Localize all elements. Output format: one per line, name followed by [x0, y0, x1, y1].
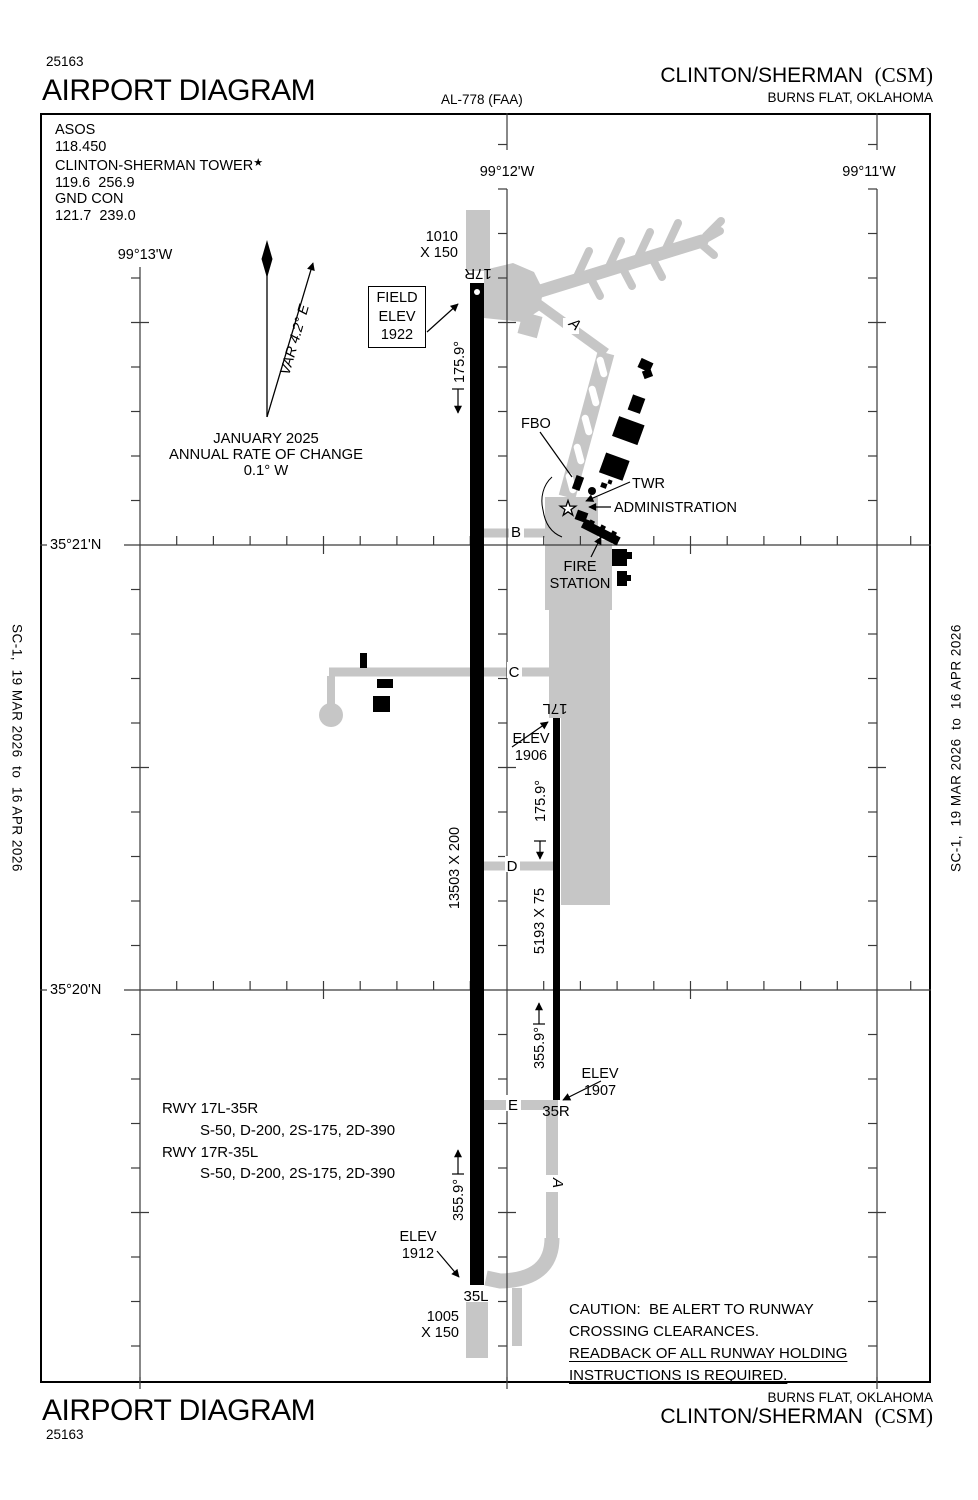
- field-elev-box: FIELD ELEV 1922: [368, 286, 426, 348]
- building: [628, 394, 646, 413]
- building: [642, 369, 653, 380]
- caution-note: CAUTION: BE ALERT TO RUNWAY CROSSING CLE…: [569, 1299, 847, 1387]
- runway-dimensions-parallel: 5193 X 75: [532, 888, 548, 954]
- rwy2-strength: S-50, D-200, 2S-175, 2D-390: [162, 1163, 395, 1185]
- airport-diagram-page: 25163 AIRPORT DIAGRAM AL-778 (FAA) CLINT…: [0, 0, 978, 1500]
- tower-star-icon: ★: [253, 156, 263, 169]
- tower-dot: [588, 487, 596, 495]
- building: [627, 552, 632, 559]
- fbo-leader: [540, 432, 572, 477]
- taxiway-label-e: E: [508, 1097, 518, 1114]
- compass-rose: VAR 4.2° E: [262, 240, 314, 417]
- building: [600, 482, 607, 489]
- fire-station-label: FIRE STATION: [550, 559, 611, 592]
- tower-freq: 119.6 256.9: [55, 175, 263, 192]
- taxiway-a-south: [546, 1100, 558, 1242]
- elev-1912-leader: [437, 1251, 459, 1277]
- runway-17l-35r: [553, 718, 560, 1100]
- runway-heading-35r: 355.9°: [532, 1027, 548, 1069]
- runway-data-block: RWY 17L-35R S-50, D-200, 2S-175, 2D-390 …: [162, 1098, 395, 1185]
- city-bottom: BURNS FLAT, OKLAHOMA: [767, 1390, 933, 1405]
- runway-id-17r: 17R: [464, 265, 492, 282]
- building: [599, 452, 630, 480]
- variation-rate-value: 0.1° W: [169, 463, 363, 479]
- runway-heading-17l: 175.9°: [533, 780, 549, 822]
- elev-1912-label: ELEV 1912: [399, 1229, 436, 1262]
- elev-1907-label: ELEV 1907: [581, 1066, 618, 1099]
- fire-station-building: [617, 571, 627, 586]
- building: [612, 416, 645, 445]
- building: [377, 679, 393, 688]
- rwy2-id: RWY 17R-35L: [162, 1142, 395, 1164]
- overrun-south: [466, 1302, 488, 1358]
- overrun-south-label: 1005 X 150: [421, 1309, 459, 1341]
- true-north-arrowhead: [262, 240, 273, 278]
- overrun-north-label: 1010 X 150: [420, 229, 458, 261]
- taxiway-label-b: B: [511, 524, 521, 541]
- asos-freq: 118.450: [55, 139, 263, 156]
- variation-date: JANUARY 2025: [169, 431, 363, 447]
- rwy1-strength: S-50, D-200, 2S-175, 2D-390: [162, 1120, 395, 1142]
- fire-station-building: [612, 549, 627, 566]
- taxiway-label-a-south: A: [549, 1177, 566, 1188]
- taxiway-label-d: D: [507, 858, 518, 875]
- comms-block: ASOS 118.450 CLINTON-SHERMAN TOWER★ 119.…: [55, 122, 263, 225]
- runway-17r-threshold-dot: [474, 289, 480, 295]
- runway-id-17l: 17L: [542, 700, 567, 717]
- gnd-con-label: GND CON: [55, 191, 263, 208]
- lat-label-3520: 35°20'N: [50, 982, 101, 998]
- twr-label: TWR: [632, 476, 665, 492]
- building: [373, 696, 390, 712]
- diagram-canvas: VAR 4.2° E: [0, 0, 978, 1500]
- field-elev-leader: [427, 304, 458, 332]
- asos-label: ASOS: [55, 122, 263, 139]
- variation-note: JANUARY 2025 ANNUAL RATE OF CHANGE 0.1° …: [169, 431, 363, 479]
- lat-label-3521: 35°21'N: [50, 537, 101, 553]
- fbo-label: FBO: [521, 416, 551, 432]
- rwy1-id: RWY 17L-35R: [162, 1098, 395, 1120]
- south-apron: [561, 718, 610, 905]
- administration-label: ADMINISTRATION: [614, 500, 737, 516]
- building: [627, 575, 631, 581]
- airport-title-bottom: CLINTON/SHERMAN (CSM): [660, 1404, 933, 1429]
- taxiway-label-c: C: [509, 664, 520, 681]
- lon-label-9913: 99°13'W: [118, 247, 173, 263]
- tower-label: CLINTON-SHERMAN TOWER★: [55, 155, 263, 175]
- pavement: [319, 210, 721, 1358]
- runway-17r-35l: [470, 283, 484, 1285]
- overrun-north: [466, 210, 490, 271]
- runway-id-35l: 35L: [463, 1288, 488, 1305]
- runway-dimensions-main: 13503 X 200: [447, 827, 463, 909]
- runway-heading-35l: 355.9°: [451, 1179, 467, 1221]
- taxiway-a-curve: [486, 1238, 552, 1281]
- chart-number-bottom: 25163: [46, 1427, 84, 1442]
- building: [607, 479, 612, 484]
- variation-label: VAR 4.2° E: [277, 302, 313, 377]
- gnd-con-freq: 121.7 239.0: [55, 208, 263, 225]
- lon-label-9912: 99°12'W: [480, 164, 535, 180]
- taxiway-c-pad: [319, 703, 343, 727]
- page-title-bottom: AIRPORT DIAGRAM: [42, 1394, 315, 1428]
- lon-label-9911: 99°11'W: [842, 164, 895, 180]
- elev-1906-label: ELEV 1906: [512, 731, 549, 764]
- runway-heading-17r: 175.9°: [452, 341, 468, 383]
- variation-rate-label: ANNUAL RATE OF CHANGE: [169, 447, 363, 463]
- runway-id-35r: 35R: [542, 1103, 570, 1120]
- building: [360, 653, 367, 668]
